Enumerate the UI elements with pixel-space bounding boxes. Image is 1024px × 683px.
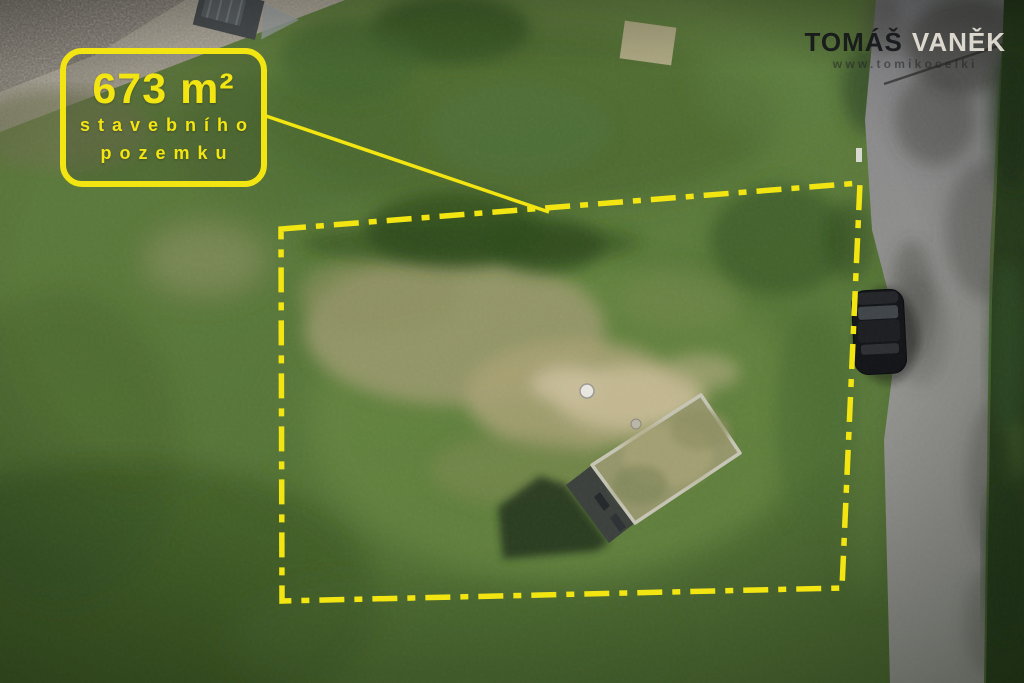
area-value: 673 m² (92, 67, 234, 112)
area-label-box: 673 m² stavebního pozemku (60, 48, 267, 187)
screenshot-root: 673 m² stavebního pozemku TOMÁŠVANĚK www… (0, 0, 1024, 683)
area-subtitle-line1: stavebního (72, 112, 255, 140)
area-subtitle-line2: pozemku (92, 140, 234, 168)
watermark-website: www.tomikocelki (804, 57, 1006, 71)
watermark: TOMÁŠVANĚK www.tomikocelki (804, 29, 1006, 71)
watermark-name-dark: TOMÁŠ (804, 27, 902, 57)
watermark-name-light: VANĚK (912, 27, 1006, 57)
watermark-name: TOMÁŠVANĚK (804, 29, 1006, 55)
